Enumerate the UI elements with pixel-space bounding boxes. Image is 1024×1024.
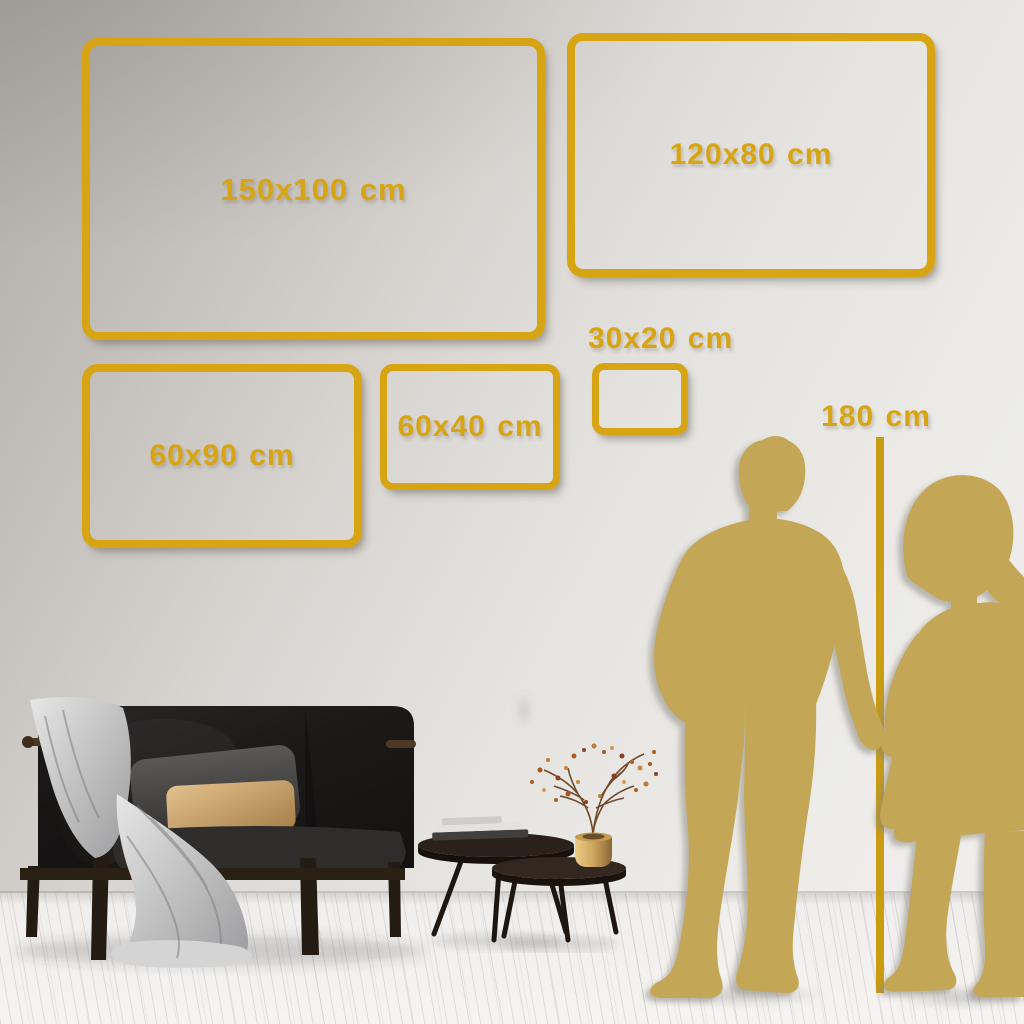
- coffee-tables: [408, 738, 658, 953]
- size-label-150x100: 150x100 cm: [220, 174, 406, 205]
- brass-vase: [575, 833, 612, 868]
- wall-shadow-smudge: [516, 693, 532, 727]
- canvas-size-guide-scene: 150x100 cm 120x80 cm 60x90 cm 60x40 cm 3…: [0, 0, 1024, 1024]
- size-label-60x90: 60x90 cm: [149, 441, 294, 471]
- large-table: [418, 833, 574, 940]
- size-label-120x80: 120x80 cm: [670, 140, 833, 170]
- sofa: [5, 696, 435, 976]
- size-frame-60x90: 60x90 cm: [82, 364, 362, 548]
- berries: [530, 744, 658, 805]
- books: [432, 815, 529, 840]
- small-table: [492, 857, 626, 940]
- size-label-60x40: 60x40 cm: [397, 412, 542, 442]
- height-label: 180 cm: [806, 402, 946, 432]
- size-frame-150x100: 150x100 cm: [82, 38, 545, 340]
- man-silhouette: [650, 436, 884, 998]
- size-frame-30x20: [592, 363, 688, 435]
- dried-branch: [530, 744, 658, 835]
- small-table-shadow: [502, 937, 618, 951]
- size-label-30x20: 30x20 cm: [588, 324, 733, 354]
- size-frame-60x40: 60x40 cm: [380, 364, 560, 490]
- couple-silhouette: [645, 432, 1024, 1010]
- size-frame-120x80: 120x80 cm: [567, 33, 935, 277]
- woman-silhouette: [880, 475, 1024, 997]
